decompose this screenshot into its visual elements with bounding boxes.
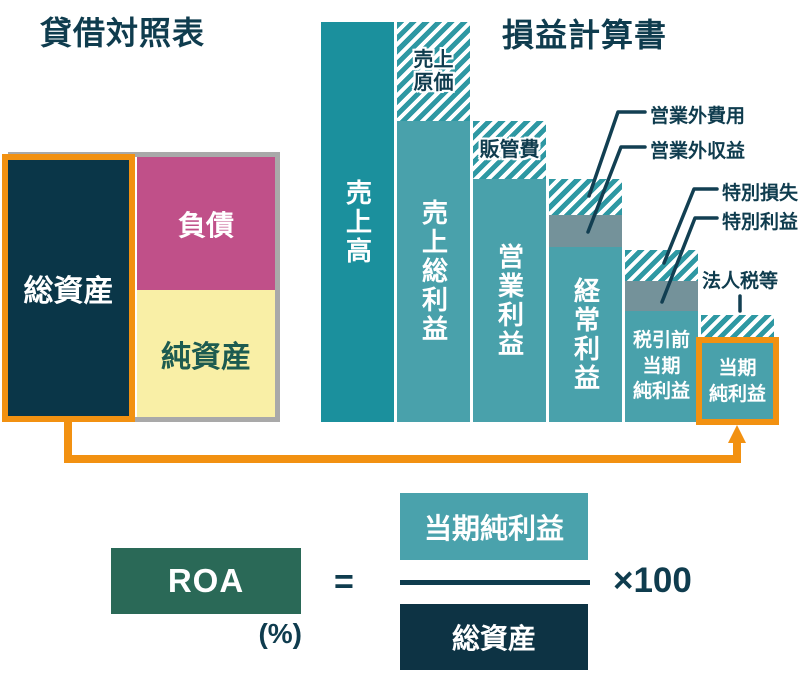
roa-unit-label: (%)	[238, 618, 302, 650]
annotation-label-extraordinary-gain: 特別利益	[722, 207, 798, 234]
annotation-label-non-operating-expenses: 営業外費用	[650, 101, 745, 128]
numerator-label: 当期純利益	[424, 507, 564, 547]
liabilities-block: 負債	[137, 157, 275, 290]
segment-extraordinary-gain	[625, 281, 698, 311]
times-100-label: ×100	[613, 561, 692, 601]
annotation-label-extraordinary-loss: 特別損失	[722, 178, 798, 205]
liabilities-label: 負債	[178, 204, 234, 244]
annotation-label-corporate-tax: 法人税等	[702, 266, 778, 293]
denominator-box: 総資産	[400, 604, 588, 670]
income-statement-title: 損益計算書	[502, 10, 667, 56]
segment-non-operating-expenses	[549, 179, 622, 215]
segment-label-cost-of-sales: 売上原価	[397, 22, 470, 121]
total-assets-label: 総資産	[24, 266, 114, 310]
net-assets-label: 純資産	[161, 332, 251, 376]
bar-label-pretax-net-income: 税引前当期純利益	[625, 311, 698, 422]
bar-label-sales: 売上高	[321, 22, 394, 422]
numerator-box: 当期純利益	[400, 493, 588, 560]
net-income-highlight-frame	[696, 337, 779, 425]
total-assets-block: 総資産	[2, 154, 135, 422]
total-assets-to-formula-connector	[68, 421, 737, 459]
denominator-label: 総資産	[452, 617, 536, 657]
bar-label-gross-profit: 売上総利益	[397, 121, 470, 422]
roa-explainer-canvas: 貸借対照表 損益計算書 負債 純資産 総資産 ROA (%) = 当期純利益 総…	[0, 0, 800, 686]
net-assets-block: 純資産	[137, 290, 275, 417]
roa-label: ROA	[168, 562, 244, 600]
fraction-line	[400, 580, 590, 585]
segment-extraordinary-loss	[625, 250, 698, 281]
segment-non-operating-income	[549, 215, 622, 247]
equals-sign: =	[334, 563, 354, 602]
roa-box: ROA	[111, 548, 301, 614]
segment-label-sga: 販管費	[473, 121, 546, 179]
bar-label-ordinary-profit: 経常利益	[549, 247, 622, 422]
annotation-label-non-operating-income: 営業外収益	[650, 136, 745, 163]
flow-arrow-head	[728, 425, 746, 443]
bar-label-operating-profit: 営業利益	[473, 179, 546, 422]
balance-sheet-title: 貸借対照表	[40, 8, 205, 54]
